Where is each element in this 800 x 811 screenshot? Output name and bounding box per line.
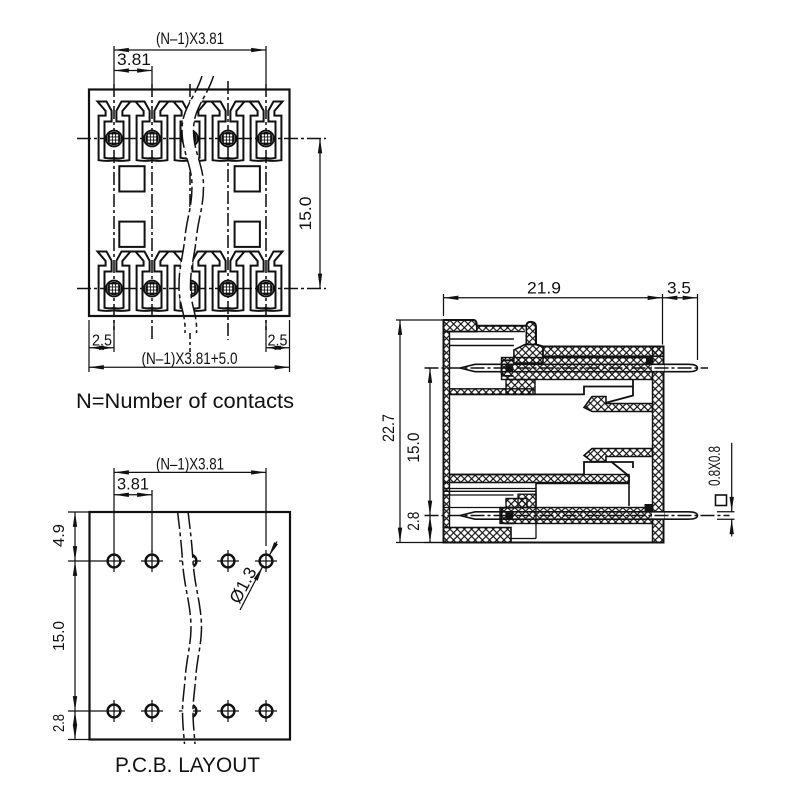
svg-text:(N–1)X3.81: (N–1)X3.81 xyxy=(156,30,224,48)
svg-text:2.8: 2.8 xyxy=(51,714,68,732)
svg-text:3.81: 3.81 xyxy=(117,476,149,494)
svg-text:15.0: 15.0 xyxy=(405,433,423,463)
svg-text:3.81: 3.81 xyxy=(117,51,151,69)
svg-text:3.5: 3.5 xyxy=(667,280,691,298)
svg-text:2.8: 2.8 xyxy=(405,512,423,531)
svg-text:2.5: 2.5 xyxy=(268,333,288,350)
svg-text:15.0: 15.0 xyxy=(297,197,315,231)
svg-text:15.0: 15.0 xyxy=(51,621,68,651)
svg-text:0.8X0.8: 0.8X0.8 xyxy=(706,446,724,486)
svg-text:P.C.B. LAYOUT: P.C.B. LAYOUT xyxy=(115,753,260,777)
svg-text:(N–1)X3.81: (N–1)X3.81 xyxy=(156,456,224,474)
svg-text:N=Number of contacts: N=Number of contacts xyxy=(76,390,294,413)
svg-text:21.9: 21.9 xyxy=(527,280,561,298)
svg-text:(N–1)X3.81+5.0: (N–1)X3.81+5.0 xyxy=(142,350,238,368)
svg-text:22.7: 22.7 xyxy=(380,414,398,442)
svg-text:2.5: 2.5 xyxy=(92,333,112,350)
svg-text:4.9: 4.9 xyxy=(51,524,68,547)
